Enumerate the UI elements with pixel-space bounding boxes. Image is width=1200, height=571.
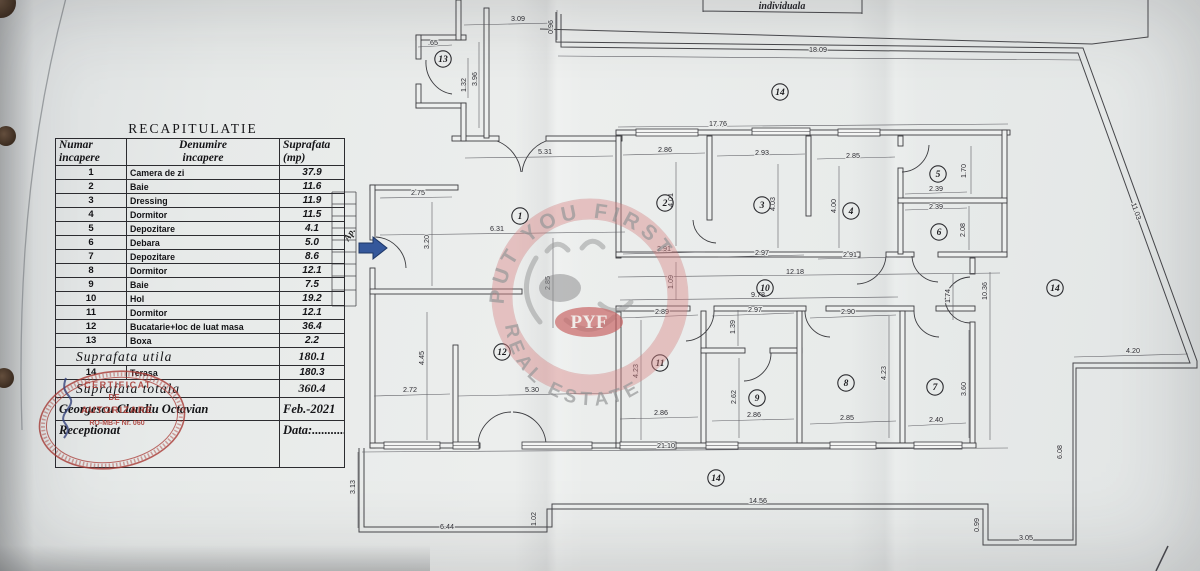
svg-text:7: 7: [933, 383, 939, 393]
signature-row: Georgescu Claudiu Octavian Feb.-2021: [56, 398, 345, 421]
reception-row: Receptionat Data:...........: [56, 421, 345, 468]
dimension-label: 3.13: [348, 480, 357, 494]
table-title: RECAPITULATIE: [55, 121, 331, 137]
svg-text:10: 10: [760, 284, 770, 294]
svg-text:11: 11: [656, 359, 665, 369]
dimension-label: 2.85: [846, 151, 860, 160]
dimension-label: 3.05: [1019, 533, 1033, 542]
dimension-label: 0.99: [972, 518, 981, 532]
room-number: 14: [708, 470, 724, 486]
svg-text:6: 6: [937, 228, 942, 238]
table-row: 7Depozitare8.6: [56, 250, 345, 264]
dimension-label: 5.30: [525, 385, 539, 394]
table-row: 2Baie11.6: [56, 180, 345, 194]
dimension-label: 2.91: [657, 244, 671, 253]
header-numar: Numar incapere: [56, 139, 127, 166]
walls: [370, 0, 1010, 448]
dimension-label: 2.91: [843, 250, 857, 259]
dimension-label: 2.86: [658, 145, 672, 154]
dimension-label: 6.44: [440, 522, 454, 531]
signature-name: Georgescu Claudiu Octavian: [56, 398, 280, 421]
room-number: 4: [843, 203, 859, 219]
room-number: 9: [749, 390, 765, 406]
svg-text:2: 2: [662, 199, 668, 209]
dimension-label: 3.09: [511, 14, 525, 23]
dimension-label: 2.08: [958, 223, 967, 237]
header-denumire: Denumire incapere: [127, 139, 280, 166]
dimension-label: 2.97: [748, 305, 762, 314]
table-row: 5Depozitare4.1: [56, 222, 345, 236]
dimension-label: 2.93: [755, 148, 769, 157]
dimension-label: 0.96: [546, 20, 555, 34]
table-row: 10Hol19.2: [56, 292, 345, 306]
dimension-label: 1.74: [943, 289, 952, 303]
svg-text:14: 14: [775, 88, 785, 98]
table-row: 3Dressing11.9: [56, 194, 345, 208]
dimension-label: 2.39: [929, 202, 943, 211]
dimension-label: 2.90: [841, 307, 855, 316]
dimension-label: 3.20: [422, 235, 431, 249]
room-number: 7: [927, 379, 943, 395]
room-number: 5: [930, 166, 946, 182]
room-number: 1: [512, 208, 528, 224]
dimension-label: 3.60: [959, 382, 968, 396]
dimension-label: 2.40: [929, 415, 943, 424]
room-number: 11: [652, 355, 668, 371]
svg-text:8: 8: [844, 379, 849, 389]
dimension-label: 2.75: [411, 188, 425, 197]
dimension-label: 2.85: [543, 276, 552, 290]
dimension-label: 21.10: [657, 441, 675, 450]
reception-label: Receptionat: [56, 421, 280, 468]
room-number: 10: [757, 280, 773, 296]
title-block: [540, 0, 1148, 44]
svg-text:14: 14: [1050, 284, 1060, 294]
dimension-label: 2.85: [840, 413, 854, 422]
dimension-label: 17.76: [709, 119, 727, 128]
dimension-label: 4.23: [879, 366, 888, 380]
table-row: 12Bucatarie+loc de luat masa36.4: [56, 320, 345, 334]
svg-text:1: 1: [518, 212, 523, 222]
dimension-label: 1.09: [666, 275, 675, 289]
reception-date-field: Data:...........: [280, 421, 345, 468]
svg-text:3: 3: [759, 201, 765, 211]
dimension-label: 4.00: [829, 199, 838, 213]
dimension-label: 14.56: [749, 496, 767, 505]
dimension-label: 10.36: [980, 282, 989, 300]
room-number: 14: [1047, 280, 1063, 296]
dimension-label: 5.31: [538, 147, 552, 156]
dimension-label: 2.97: [755, 248, 769, 257]
dimension-label: 6.08: [1055, 445, 1064, 459]
dimension-label: 4.45: [417, 351, 426, 365]
recap-table: Numar incapere Denumire incapere Suprafa…: [55, 138, 333, 468]
summary-row: Suprafata totala360.4: [56, 380, 345, 398]
svg-text:5: 5: [936, 170, 941, 180]
dimension-label: 1.70: [959, 164, 968, 178]
svg-text:4: 4: [848, 207, 854, 217]
dimension-labels: .651.323.963.090.9618.0917.765.312.862.9…: [348, 14, 1143, 542]
room-number: 13: [435, 51, 451, 67]
entrance-marker: Ap.: [342, 227, 387, 259]
svg-text:9: 9: [755, 394, 760, 404]
room-number: 8: [838, 375, 854, 391]
table-row: 1Camera de zi37.9: [56, 166, 345, 180]
title-block-label: individuala: [759, 1, 806, 12]
svg-text:12: 12: [497, 348, 507, 358]
dimension-label: 18.09: [809, 45, 827, 54]
pen-mark: [1156, 546, 1168, 571]
signature-date: Feb.-2021: [280, 398, 345, 421]
dimension-label: 1.32: [459, 78, 468, 92]
room-number: 14: [772, 84, 788, 100]
dimension-label: 2.62: [729, 390, 738, 404]
room-number: 12: [494, 344, 510, 360]
dimension-label: 4.23: [631, 364, 640, 378]
dimension-label: 2.72: [403, 385, 417, 394]
table-row: 8Dormitor12.1: [56, 264, 345, 278]
dimension-label: 2.39: [929, 184, 943, 193]
dimension-label: 11.03: [1129, 201, 1143, 220]
dimension-label: 12.18: [786, 267, 804, 276]
dimension-label: 4.20: [1126, 346, 1140, 355]
svg-text:14: 14: [711, 474, 721, 484]
room-number: 6: [931, 224, 947, 240]
dimension-label: 2.86: [654, 408, 668, 417]
table-row: 4Dormitor11.5: [56, 208, 345, 222]
table-row: 13Boxa2.2: [56, 334, 345, 348]
table-header-row: Numar incapere Denumire incapere Suprafa…: [56, 139, 345, 166]
svg-text:13: 13: [438, 55, 448, 65]
table-row: 11Dormitor12.1: [56, 306, 345, 320]
table-row: 6Debara5.0: [56, 236, 345, 250]
dimension-label: 6.31: [490, 224, 504, 233]
summary-row: Suprafata utila180.1: [56, 348, 345, 366]
dimension-label: 2.86: [747, 410, 761, 419]
entrance-arrow-icon: [359, 237, 387, 259]
scanned-floorplan-document: individuala: [0, 0, 1200, 571]
summary-row: 14Terasa180.3: [56, 366, 345, 380]
dimension-label: 1.02: [529, 512, 538, 526]
dimension-label: 2.89: [655, 307, 669, 316]
dimension-label: .65: [428, 38, 438, 47]
table-row: 9Baie7.5: [56, 278, 345, 292]
header-suprafata: Suprafata (mp): [280, 139, 345, 166]
dimension-label: 3.96: [470, 72, 479, 86]
dimension-label: 1.39: [728, 320, 737, 334]
